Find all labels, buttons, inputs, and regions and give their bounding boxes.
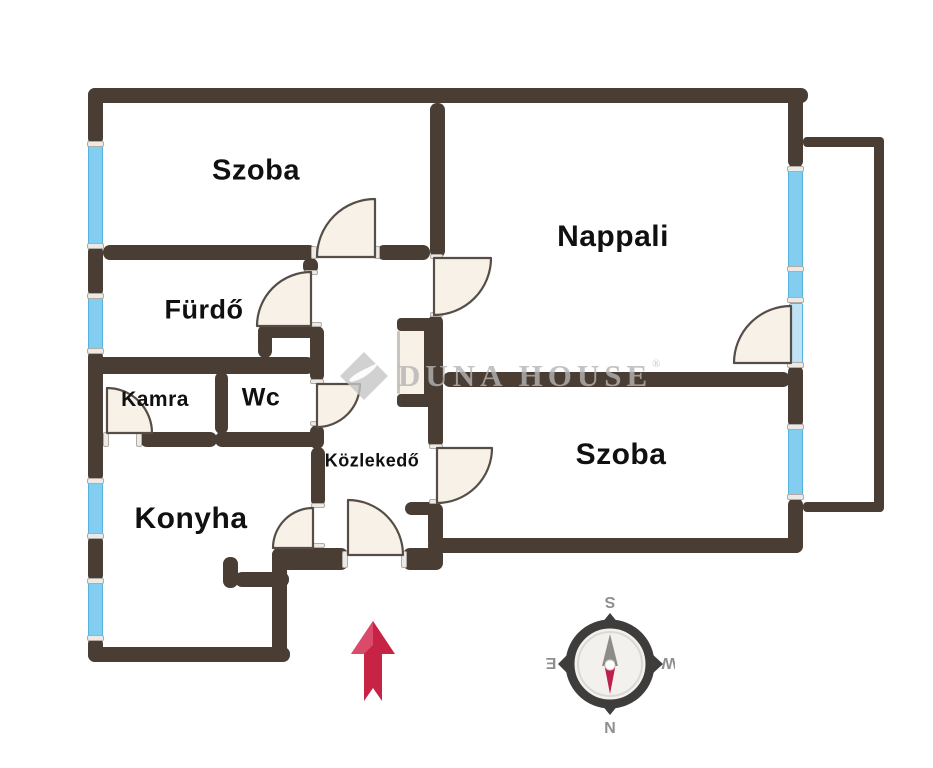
compass-rose-icon: S N E W [545, 593, 675, 735]
door-arc-szoba-bottom [437, 448, 492, 503]
door-arc-konyha [273, 508, 313, 548]
compass-letter-right: W [661, 654, 675, 671]
compass-letter-bottom: N [604, 718, 616, 735]
door-arc-szoba-top [317, 199, 375, 257]
room-label-furdo: Fürdő [165, 295, 244, 326]
door-layer [0, 0, 933, 768]
compass-hub [605, 660, 615, 670]
door-arc-nappali [434, 258, 491, 315]
door-arc-balcony [734, 306, 791, 363]
room-label-konyha: Konyha [134, 502, 247, 536]
room-label-nappali: Nappali [557, 220, 669, 254]
room-label-wc: Wc [242, 384, 281, 413]
entrance-arrow-icon [351, 621, 395, 701]
room-label-szoba-bottom: Szoba [576, 438, 667, 472]
floor-plan: Szoba Nappali Fürdő Kamra Wc Közlekedő K… [0, 0, 933, 768]
room-label-kozlekedo: Közlekedő [325, 451, 420, 472]
compass-letter-left: E [545, 654, 556, 671]
room-label-szoba-top: Szoba [212, 155, 300, 188]
compass-letter-top: S [604, 593, 615, 610]
door-arc-entrance [348, 500, 403, 555]
door-arc-furdo [257, 272, 311, 326]
door-arc-wc [317, 384, 360, 427]
room-label-kamra: Kamra [121, 388, 189, 412]
